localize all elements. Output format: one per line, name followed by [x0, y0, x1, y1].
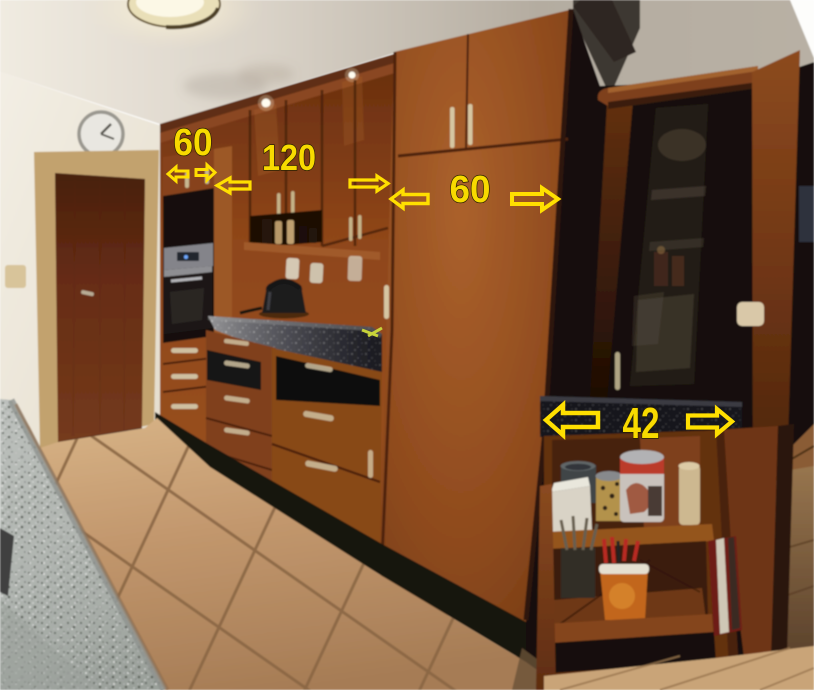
svg-text:60: 60 — [450, 169, 491, 211]
svg-text:60: 60 — [174, 122, 213, 164]
svg-text:42: 42 — [623, 399, 660, 448]
svg-text:120: 120 — [262, 137, 316, 178]
